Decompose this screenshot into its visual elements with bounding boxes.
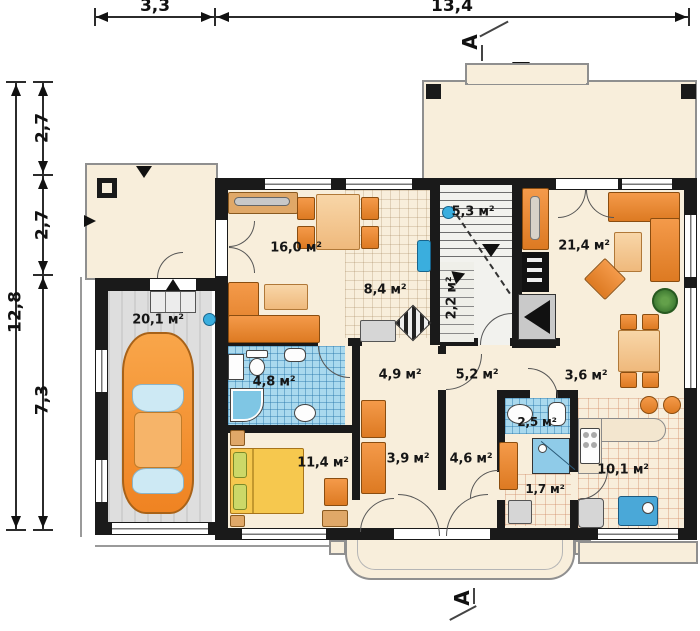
section-marker-a-bottom: A xyxy=(452,590,472,605)
sink-basin xyxy=(642,502,654,514)
terrace-post xyxy=(681,84,696,99)
dimension-tick xyxy=(33,81,53,83)
burner xyxy=(583,432,589,438)
floor-plan-canvas: 3,3 13,4 12,8 2,7 2,7 7,3 A A xyxy=(0,0,700,631)
bar-stool xyxy=(640,396,658,414)
section-marker-a-top: A xyxy=(460,34,480,49)
inner-wall xyxy=(556,390,578,398)
coffee-table xyxy=(614,232,642,272)
dining-chair xyxy=(297,197,315,220)
room-label-hallway: 8,4 м² xyxy=(364,284,407,297)
dimension-label-13-4: 13,4 xyxy=(431,0,473,15)
section-flag-line xyxy=(479,21,508,38)
inner-wall xyxy=(352,346,360,432)
room-label-kitchen: 10,1 м² xyxy=(597,464,649,477)
pillow xyxy=(233,452,247,478)
terrace-path xyxy=(578,541,698,564)
radiator xyxy=(203,313,216,326)
dimension-label-3-3: 3,3 xyxy=(140,0,170,15)
burner xyxy=(591,432,597,438)
dimension-line-top xyxy=(95,16,690,18)
inner-wall xyxy=(497,390,530,398)
dimension-tick xyxy=(6,529,26,531)
window xyxy=(622,179,672,189)
dimension-arrow xyxy=(217,12,229,22)
inner-wall xyxy=(438,346,446,354)
room-label-living-room: 21,4 м² xyxy=(558,240,610,253)
window xyxy=(242,529,326,539)
window xyxy=(685,215,696,277)
burner xyxy=(583,442,589,448)
dimension-arrow xyxy=(38,177,48,189)
blanket-line xyxy=(252,449,254,513)
bar-stool xyxy=(663,396,681,414)
fridge xyxy=(578,498,604,528)
inner-wall xyxy=(570,398,578,472)
terrace xyxy=(422,80,697,182)
room-label-lobby: 5,2 м² xyxy=(456,369,499,382)
window xyxy=(685,288,696,388)
dimension-tick xyxy=(33,174,53,176)
garage-window xyxy=(96,460,107,502)
shower xyxy=(532,438,570,474)
room-label-passage: 3,6 м² xyxy=(565,370,608,383)
shelf-item xyxy=(527,278,542,282)
corner-sofa xyxy=(650,218,680,282)
dimension-label-2-7b: 2,7 xyxy=(35,210,52,240)
side-table xyxy=(322,510,348,527)
dining-table xyxy=(618,330,660,372)
dimension-tick xyxy=(33,529,53,531)
garage-steps xyxy=(150,291,196,313)
porch-step xyxy=(329,540,346,555)
room-label-corridor: 4,9 м² xyxy=(379,369,422,382)
room-label-living-dining: 16,0 м² xyxy=(270,242,322,255)
dimension-arrow xyxy=(38,84,48,96)
section-flag-line xyxy=(449,605,476,621)
section-flag-line xyxy=(481,45,483,61)
dining-chair xyxy=(620,314,637,330)
dining-chair xyxy=(620,372,637,388)
fireplace-hearth xyxy=(524,300,550,334)
plant xyxy=(652,288,678,314)
eaves-line xyxy=(95,545,345,547)
entrance-arrow xyxy=(136,166,152,178)
wardrobe xyxy=(499,442,518,490)
dimension-label-12-8: 12,8 xyxy=(8,291,25,333)
coffee-table xyxy=(264,284,308,310)
room-label-wc: 2,5 м² xyxy=(517,416,556,428)
dimension-line-left-segments xyxy=(42,82,44,530)
nightstand xyxy=(230,430,245,446)
dimension-arrow xyxy=(11,516,21,528)
porch-door-opening xyxy=(216,220,227,276)
bedroom-armchair xyxy=(324,478,348,506)
room-label-under-stairs: 2,2 м² xyxy=(446,277,459,320)
entry-porch-inner xyxy=(357,535,563,570)
dining-table xyxy=(316,194,360,250)
dimension-arrow xyxy=(38,516,48,528)
room-label-entry-hall: 4,6 м² xyxy=(450,453,493,466)
stair-treads xyxy=(440,185,512,261)
car-roof xyxy=(134,412,182,468)
eaves-line xyxy=(80,277,82,537)
dimension-label-7-3: 7,3 xyxy=(35,385,52,415)
corner-sofa xyxy=(228,315,320,343)
room-label-bedroom: 11,4 м² xyxy=(297,457,349,470)
terrace-post xyxy=(426,84,441,99)
inner-wall xyxy=(512,340,556,348)
dimension-arrow xyxy=(38,261,48,273)
dining-chair xyxy=(642,372,659,388)
dimension-arrow xyxy=(11,84,21,96)
terrace-door-opening xyxy=(556,179,618,189)
dimension-tick xyxy=(688,8,690,26)
dining-chair xyxy=(361,226,379,249)
room-label-bathroom: 4,8 м² xyxy=(253,376,296,389)
room-label-garage: 20,1 м² xyxy=(132,314,184,327)
inner-wall xyxy=(430,185,440,345)
room-label-staircase: 5,3 м² xyxy=(452,206,495,219)
inner-wall xyxy=(352,433,360,500)
pantry-appliance xyxy=(508,500,532,524)
shelf-item xyxy=(527,268,542,272)
window xyxy=(346,179,412,189)
sink xyxy=(284,348,306,362)
entrance-arrow xyxy=(84,215,96,227)
inner-wall xyxy=(497,500,505,535)
dimension-label-2-7a: 2,7 xyxy=(35,113,52,143)
window xyxy=(265,179,331,189)
fire-log xyxy=(530,196,540,240)
wardrobe xyxy=(361,400,386,438)
sideboard-item xyxy=(234,197,290,206)
hall-cabinet xyxy=(360,320,396,342)
washing-machine xyxy=(228,354,244,380)
dimension-tick xyxy=(214,8,216,26)
dimension-tick xyxy=(33,274,53,276)
pillow xyxy=(233,484,247,510)
toilet-bowl xyxy=(249,358,265,376)
dining-chair xyxy=(642,314,659,330)
dimension-arrow xyxy=(38,161,48,173)
inner-wall xyxy=(438,390,446,490)
dining-chair xyxy=(361,197,379,220)
garage-window xyxy=(96,350,107,392)
dimension-arrow xyxy=(96,12,108,22)
room-label-corridor-2: 3,9 м² xyxy=(387,453,430,466)
dimension-arrow xyxy=(201,12,213,22)
shower-drain xyxy=(538,444,547,453)
nightstand xyxy=(230,515,245,527)
sink xyxy=(294,404,316,422)
toilet xyxy=(246,350,268,358)
car-rear-window xyxy=(132,468,184,494)
dimension-arrow xyxy=(675,12,687,22)
wardrobe xyxy=(361,442,386,494)
car-windshield xyxy=(132,384,184,412)
shelf-item xyxy=(527,258,542,262)
section-flag-line xyxy=(473,588,475,604)
dimension-tick xyxy=(6,81,26,83)
inner-wall xyxy=(570,500,578,535)
section-cut-arrow xyxy=(482,244,500,257)
chimney-flue xyxy=(102,183,112,193)
window xyxy=(598,529,678,539)
room-label-pantry: 1,7 м² xyxy=(525,483,564,495)
garage-door xyxy=(112,523,208,534)
entrance-arrow xyxy=(166,279,180,290)
terrace-join xyxy=(468,79,586,84)
burner xyxy=(591,442,597,448)
radiator xyxy=(417,240,431,272)
dimension-arrow xyxy=(38,277,48,289)
